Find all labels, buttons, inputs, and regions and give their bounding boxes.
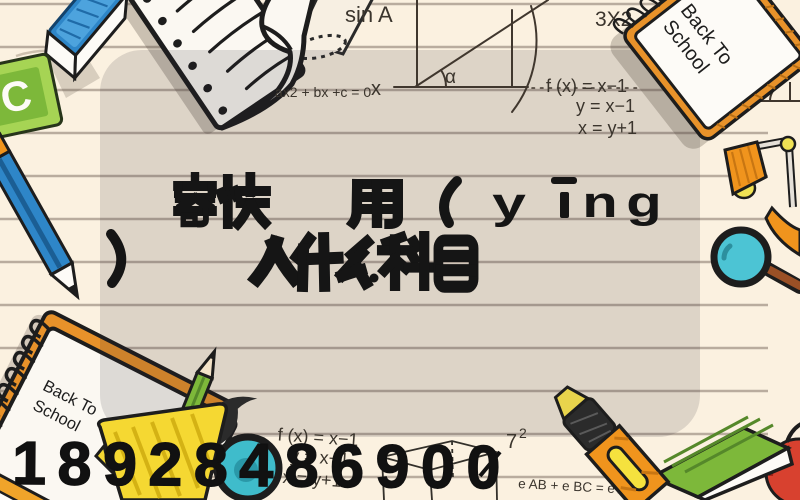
svg-text:x = y+1: x = y+1	[578, 118, 637, 138]
svg-text:sin A: sin A	[345, 2, 393, 27]
svg-text:y = x−1: y = x−1	[576, 96, 635, 116]
svg-text:y: y	[492, 179, 526, 228]
svg-text:g: g	[626, 177, 661, 227]
svg-text:n: n	[582, 177, 617, 227]
svg-text:18928486900: 18928486900	[12, 429, 512, 500]
svg-text:f (x) = x−1: f (x) = x−1	[546, 76, 627, 96]
svg-text:2: 2	[519, 425, 527, 441]
svg-text:x: x	[371, 78, 381, 100]
svg-text:α: α	[445, 67, 456, 88]
svg-text:ax2 + bx +c = 0: ax2 + bx +c = 0	[275, 84, 371, 100]
